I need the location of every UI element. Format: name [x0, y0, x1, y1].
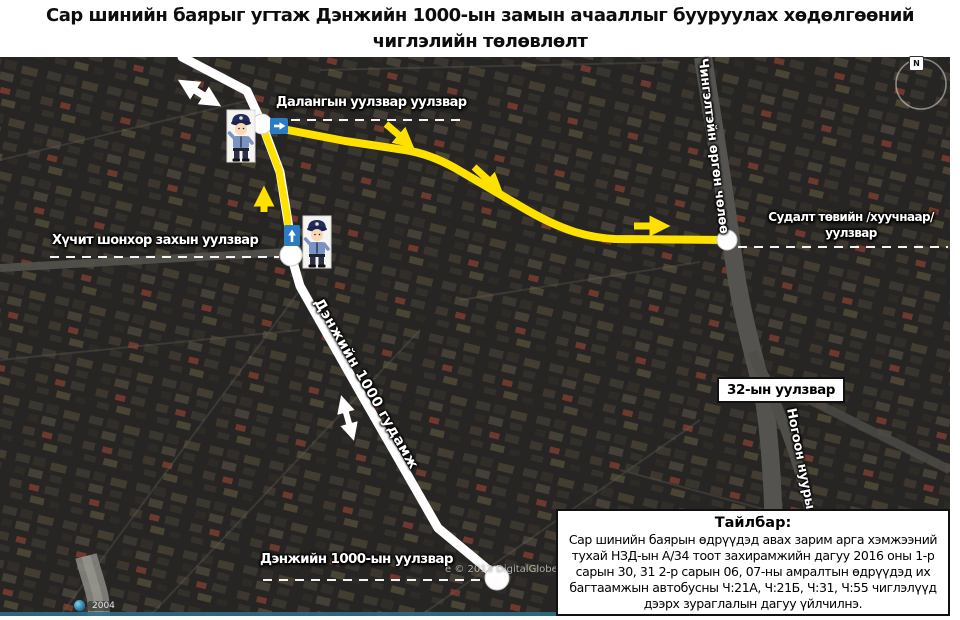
copyright-year: 2004 — [88, 601, 119, 611]
globe-icon — [74, 600, 85, 611]
junction-label-dalangiin: Далангын уулзвар уулзвар — [276, 95, 466, 110]
infographic-page: Сар шинийн баярыг угтаж Дэнжийн 1000-ын … — [0, 0, 960, 620]
junction-label-khuchit: Хүчит шонхор захын уулзвар — [52, 233, 258, 248]
legend-box: Тайлбар: Сар шинийн баярын өдрүүдэд авах… — [556, 509, 950, 616]
compass-north-label: N — [909, 56, 924, 71]
police-officer-icon-khuchit — [303, 216, 331, 268]
junction-dot-khuchit — [280, 244, 302, 266]
digitalglobe-credit: е © 2013 DigitalGlobe — [445, 564, 558, 575]
legend-title: Тайлбар: — [565, 514, 941, 532]
junction-label-sudalt-line2: уулзвар — [752, 225, 950, 241]
legend-body: Сар шинийн баярын өдрүүдэд авах зарим ар… — [565, 532, 941, 612]
junction-label-32-box: 32-ын уулзвар — [717, 377, 845, 403]
junction-label-sudalt-line1: Судалт төвийн /хуучнаар/ — [752, 209, 950, 225]
one-way-sign-up — [284, 225, 300, 246]
junction-label-sudalt: Судалт төвийн /хуучнаар/ уулзвар — [752, 209, 950, 241]
copyright-2004: 2004 — [74, 600, 119, 611]
police-officer-icon-dalangiin — [227, 110, 255, 162]
junction-label-denjiin: Дэнжийн 1000-ын уулзвар — [260, 551, 453, 567]
one-way-sign-right — [270, 118, 288, 134]
